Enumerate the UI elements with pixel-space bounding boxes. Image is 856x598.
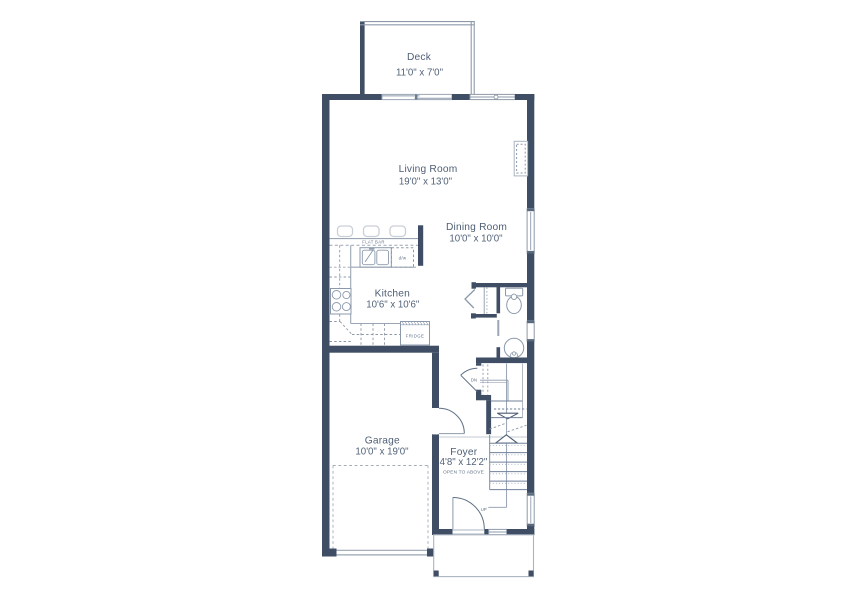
svg-text:10'0" x 19'0": 10'0" x 19'0" <box>355 447 409 458</box>
svg-text:19'0" x 13'0": 19'0" x 13'0" <box>399 177 453 188</box>
svg-text:Living Room: Living Room <box>399 164 458 175</box>
svg-text:4'8" x 12'2": 4'8" x 12'2" <box>440 457 488 468</box>
svg-text:UP: UP <box>481 507 487 512</box>
svg-text:d/w: d/w <box>399 256 407 261</box>
svg-text:10'0" x 10'0": 10'0" x 10'0" <box>449 234 503 245</box>
svg-text:OPEN TO ABOVE: OPEN TO ABOVE <box>443 469 484 475</box>
svg-text:FLAT BAR: FLAT BAR <box>362 239 384 244</box>
svg-text:10'6" x 10'6": 10'6" x 10'6" <box>366 300 420 311</box>
svg-text:Deck: Deck <box>407 52 432 63</box>
svg-text:Dining Room: Dining Room <box>446 222 507 233</box>
svg-text:Kitchen: Kitchen <box>375 288 410 299</box>
svg-text:Garage: Garage <box>365 436 400 447</box>
svg-text:DN: DN <box>471 378 477 383</box>
svg-text:11'0" x 7'0": 11'0" x 7'0" <box>396 68 444 79</box>
svg-text:FRIDGE: FRIDGE <box>406 334 425 339</box>
